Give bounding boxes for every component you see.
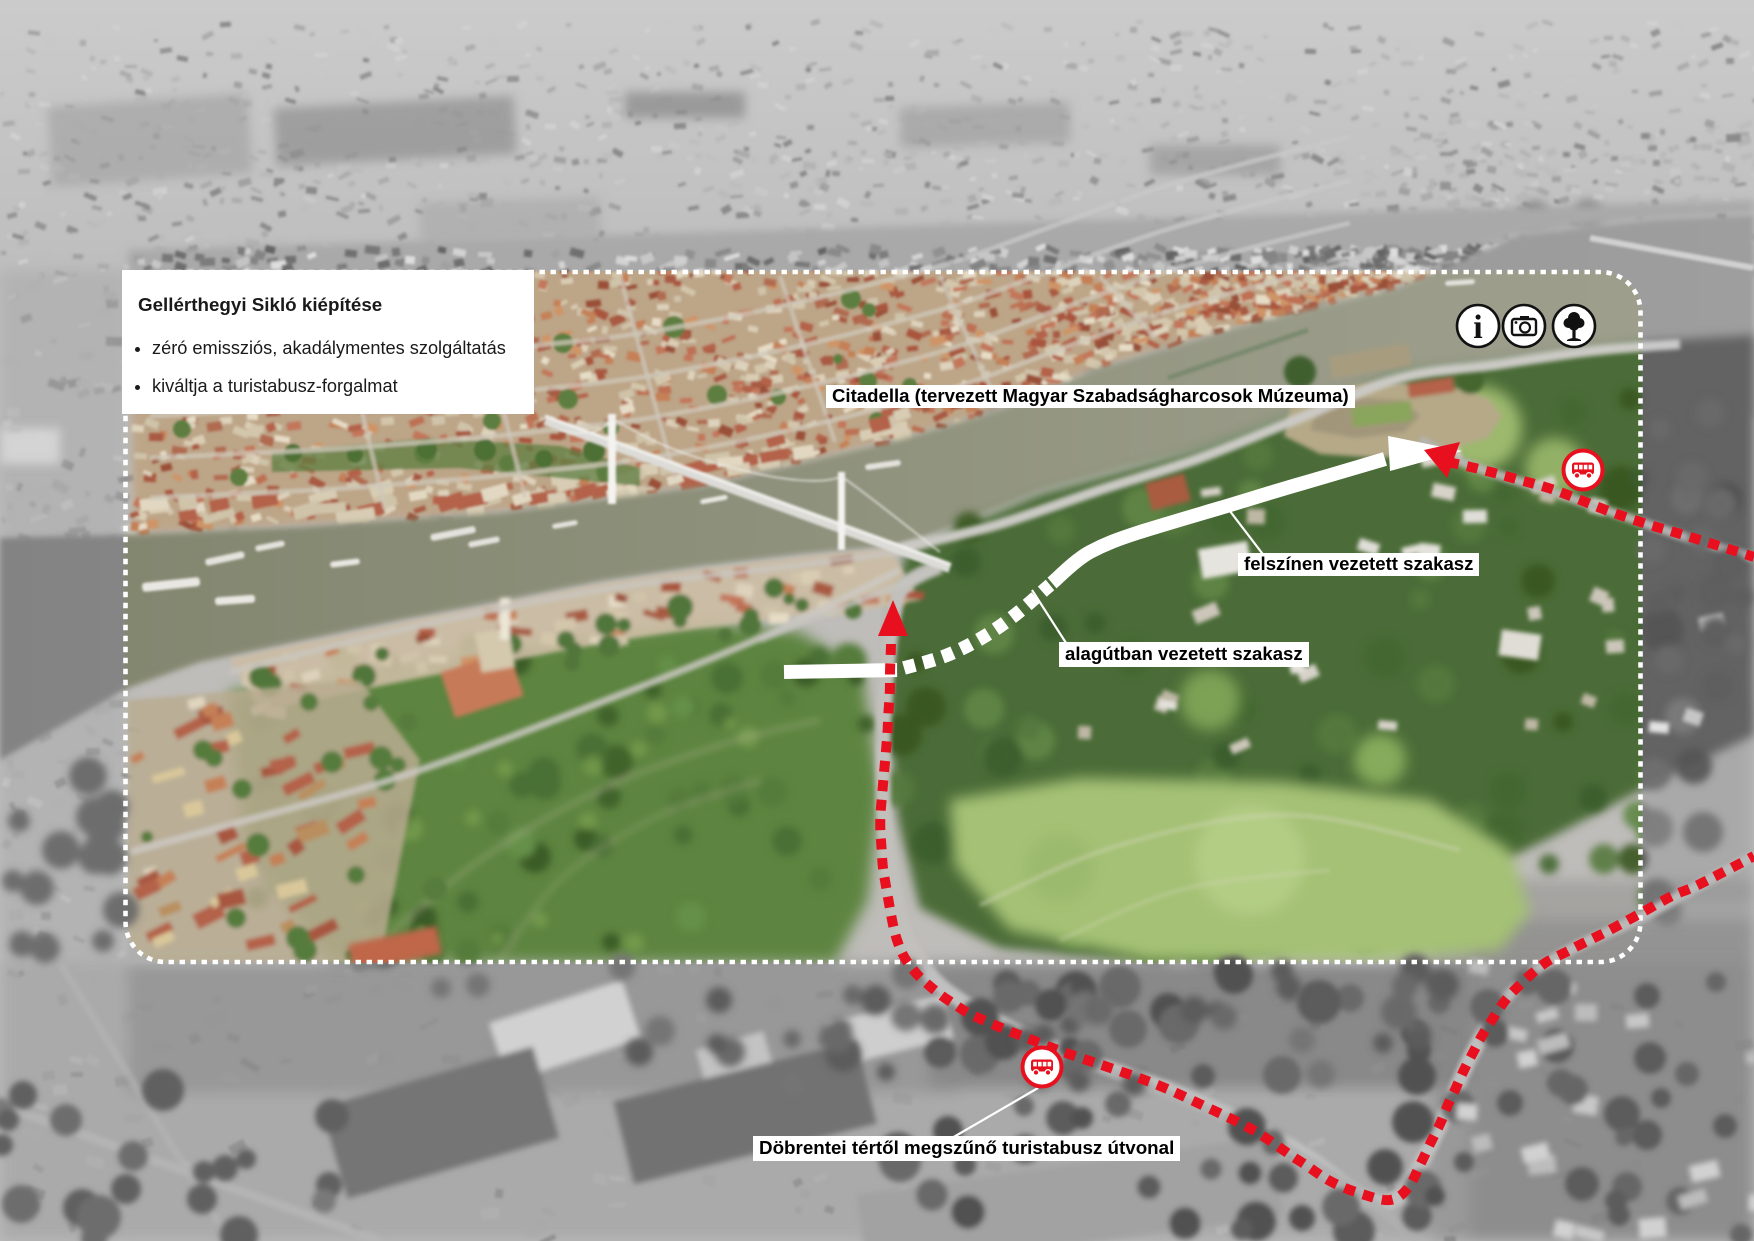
svg-text:i: i [1473,309,1482,346]
